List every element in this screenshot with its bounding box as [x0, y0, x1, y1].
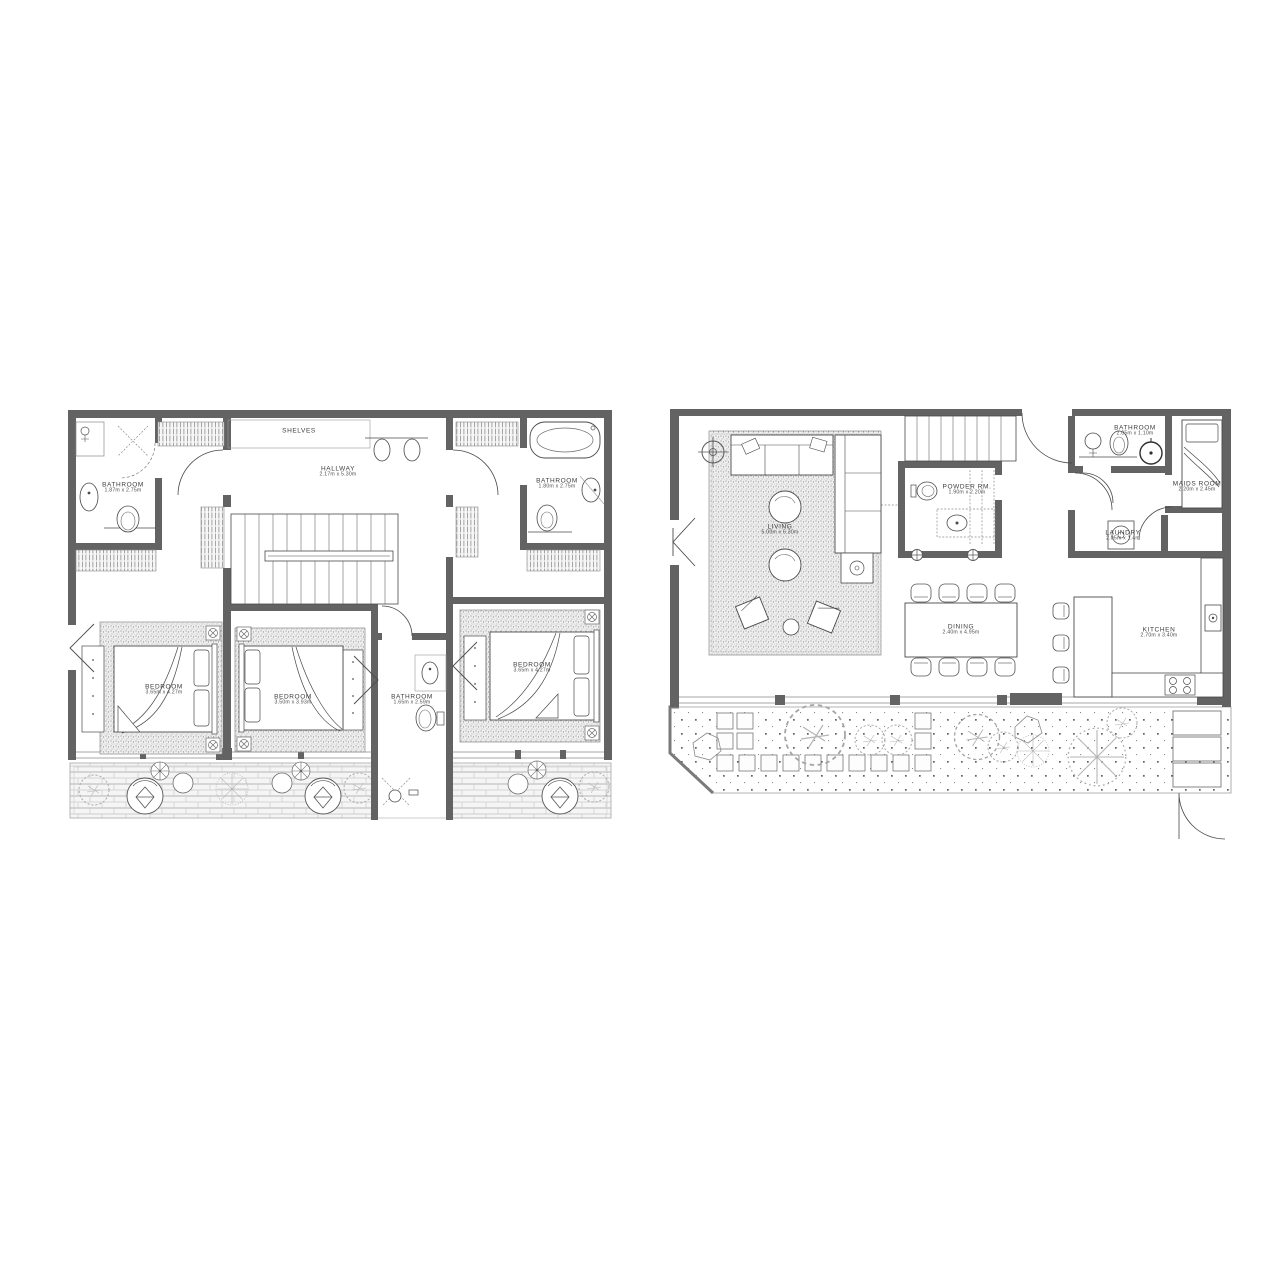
upper-bedroom-1: [82, 622, 222, 754]
upper-hallway-console: [365, 438, 428, 461]
upper-bedroom-2: [235, 627, 365, 752]
floor-plan-sheet: SHELVES BATHROOM 1.87m x 2.75m HALLWAY 2…: [0, 0, 1280, 1280]
lower-dining-furniture: [905, 584, 1017, 676]
lower-opening-chevron: [673, 518, 695, 566]
lower-living-furniture: [698, 431, 881, 655]
upper-stairs: [231, 514, 398, 604]
upper-bedroom-3: [460, 610, 600, 742]
upper-floor-plan: SHELVES BATHROOM 1.87m x 2.75m HALLWAY 2…: [60, 400, 620, 840]
upper-bathroom-1-fixtures: [76, 422, 156, 532]
lower-floor-plan: LIVING 5.00m x 5.30m POWDER RM. 1.90m x …: [665, 395, 1245, 855]
lower-floor-plan-drawing: [665, 395, 1245, 855]
upper-floor-plan-drawing: [60, 400, 620, 840]
lower-kitchen-furniture: [1053, 558, 1223, 697]
lower-service-fixtures: [1079, 420, 1222, 549]
upper-bathroom-2-fixtures: [528, 422, 604, 532]
lower-powder-fixtures: [911, 482, 995, 561]
upper-bathroom-3-fixtures: [389, 655, 446, 802]
upper-balconies: [70, 761, 611, 818]
lower-terrace: [670, 705, 1231, 839]
